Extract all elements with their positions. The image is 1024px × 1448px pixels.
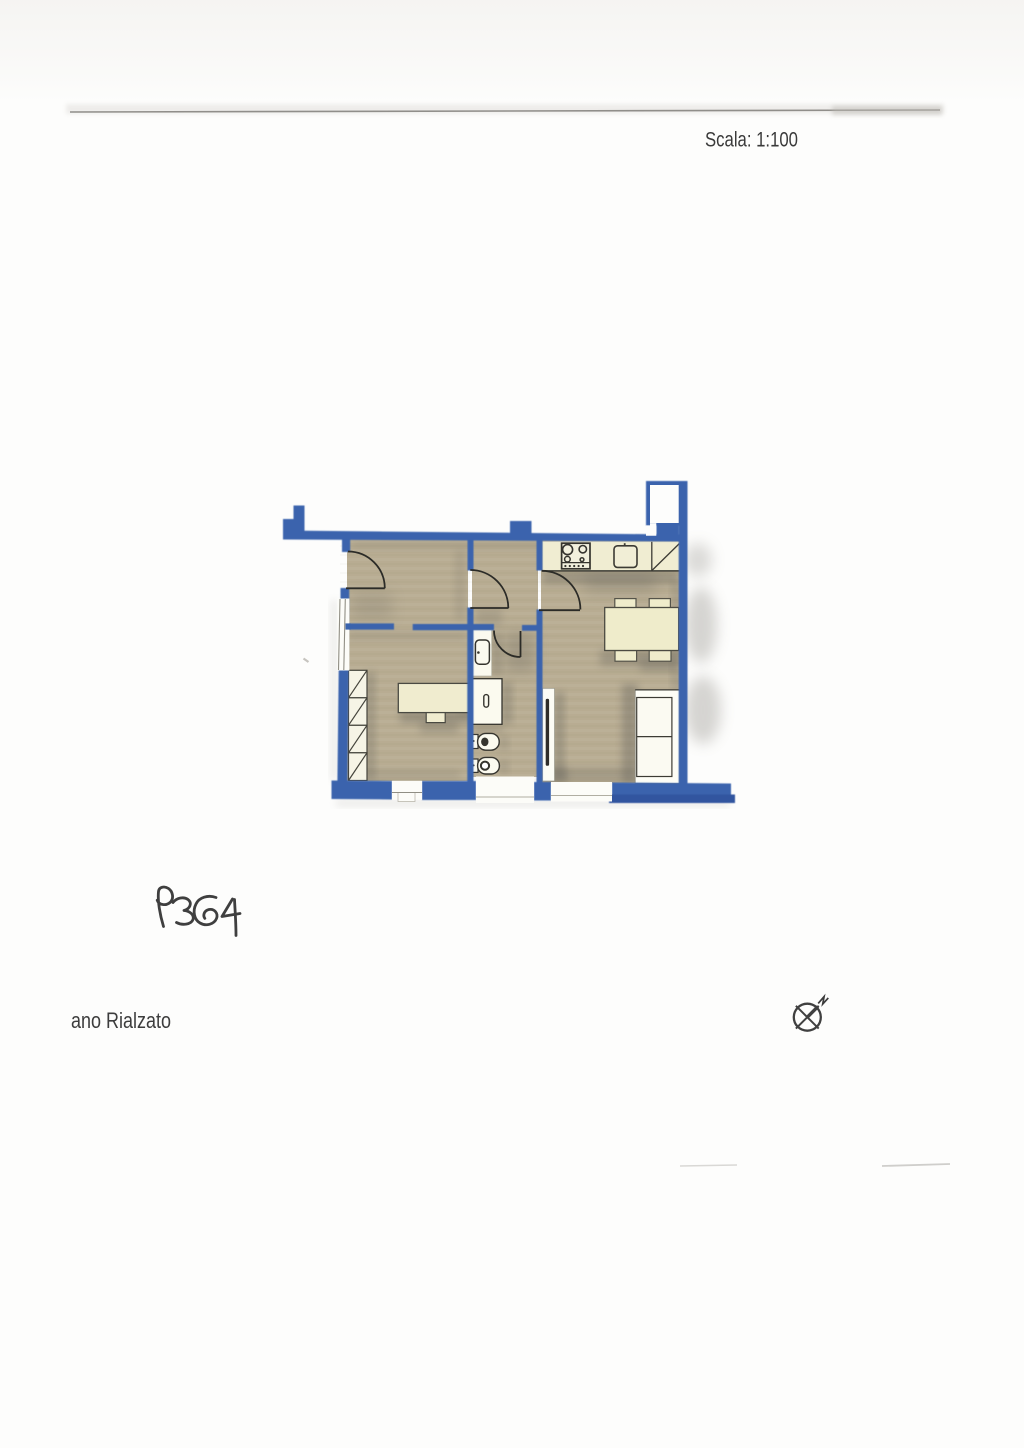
svg-text:Scala: 1:100: Scala: 1:100 xyxy=(705,129,798,152)
svg-text:ano Rialzato: ano Rialzato xyxy=(71,1008,171,1033)
